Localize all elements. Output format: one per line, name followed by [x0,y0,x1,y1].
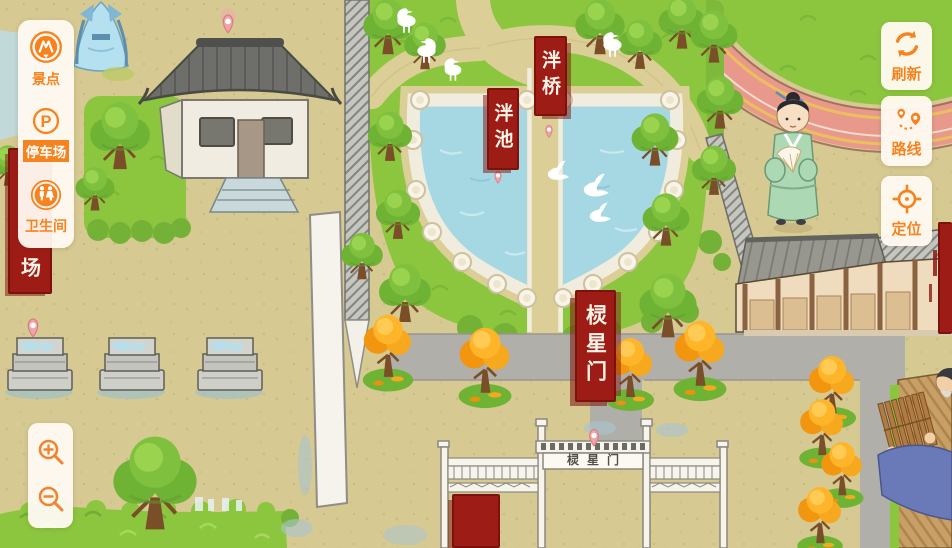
sidebar-item-restroom[interactable]: 卫生间 [25,179,67,236]
map-button-label: 路线 [891,138,921,159]
poi-banner-bottom-partial[interactable] [452,494,500,548]
map-tools-sidebar: 景点 P 停车场 卫生间 [18,20,74,248]
parking-icon: P [32,107,60,135]
map-canvas[interactable] [0,0,952,548]
poi-banner-text: 泮池 [490,103,517,155]
restroom-icon [30,179,62,211]
gate-plaque-text: 棂星门 [544,452,642,468]
poi-banner-pan-bridge[interactable]: 泮桥 [534,36,567,116]
sidebar-item-label: 景点 [32,69,60,89]
sidebar-item-scenic[interactable]: 景点 [29,30,63,89]
poi-banner-text: 泮桥 [537,50,564,102]
zoom-out-icon [36,484,66,514]
route-button[interactable]: 路线 [881,96,932,166]
refresh-icon [891,28,923,60]
tiled-wall [345,0,369,388]
refresh-button[interactable]: 刷新 [881,22,932,90]
poi-banner-text: 场 [16,257,45,284]
sidebar-item-label: 卫生间 [25,216,67,236]
svg-text:P: P [41,113,52,131]
map-button-label: 刷新 [891,63,921,84]
locate-icon [891,183,923,215]
poi-banner-right-partial [938,222,952,334]
sidebar-item-parking[interactable]: P 停车场 [23,107,70,162]
scenic-spot-icon [29,30,63,64]
locate-button[interactable]: 定位 [881,176,932,246]
route-icon [890,103,924,135]
poi-banner-text: 棂星门 [581,304,611,388]
zoom-out-button[interactable] [34,482,68,516]
scenic-map-app: 泮桥 泮池 棂星门 场 棂星门 景点 P 停车场 卫生间 [0,0,952,548]
zoom-in-button[interactable] [34,435,68,469]
poi-banner-pan-pond[interactable]: 泮池 [487,88,519,170]
stone-stelae [5,338,263,399]
sidebar-item-label: 停车场 [23,140,70,162]
poi-banner-lingxing-gate[interactable]: 棂星门 [575,290,616,402]
zoom-in-icon [36,437,66,467]
map-button-label: 定位 [891,218,921,239]
zoom-controls [28,423,73,528]
